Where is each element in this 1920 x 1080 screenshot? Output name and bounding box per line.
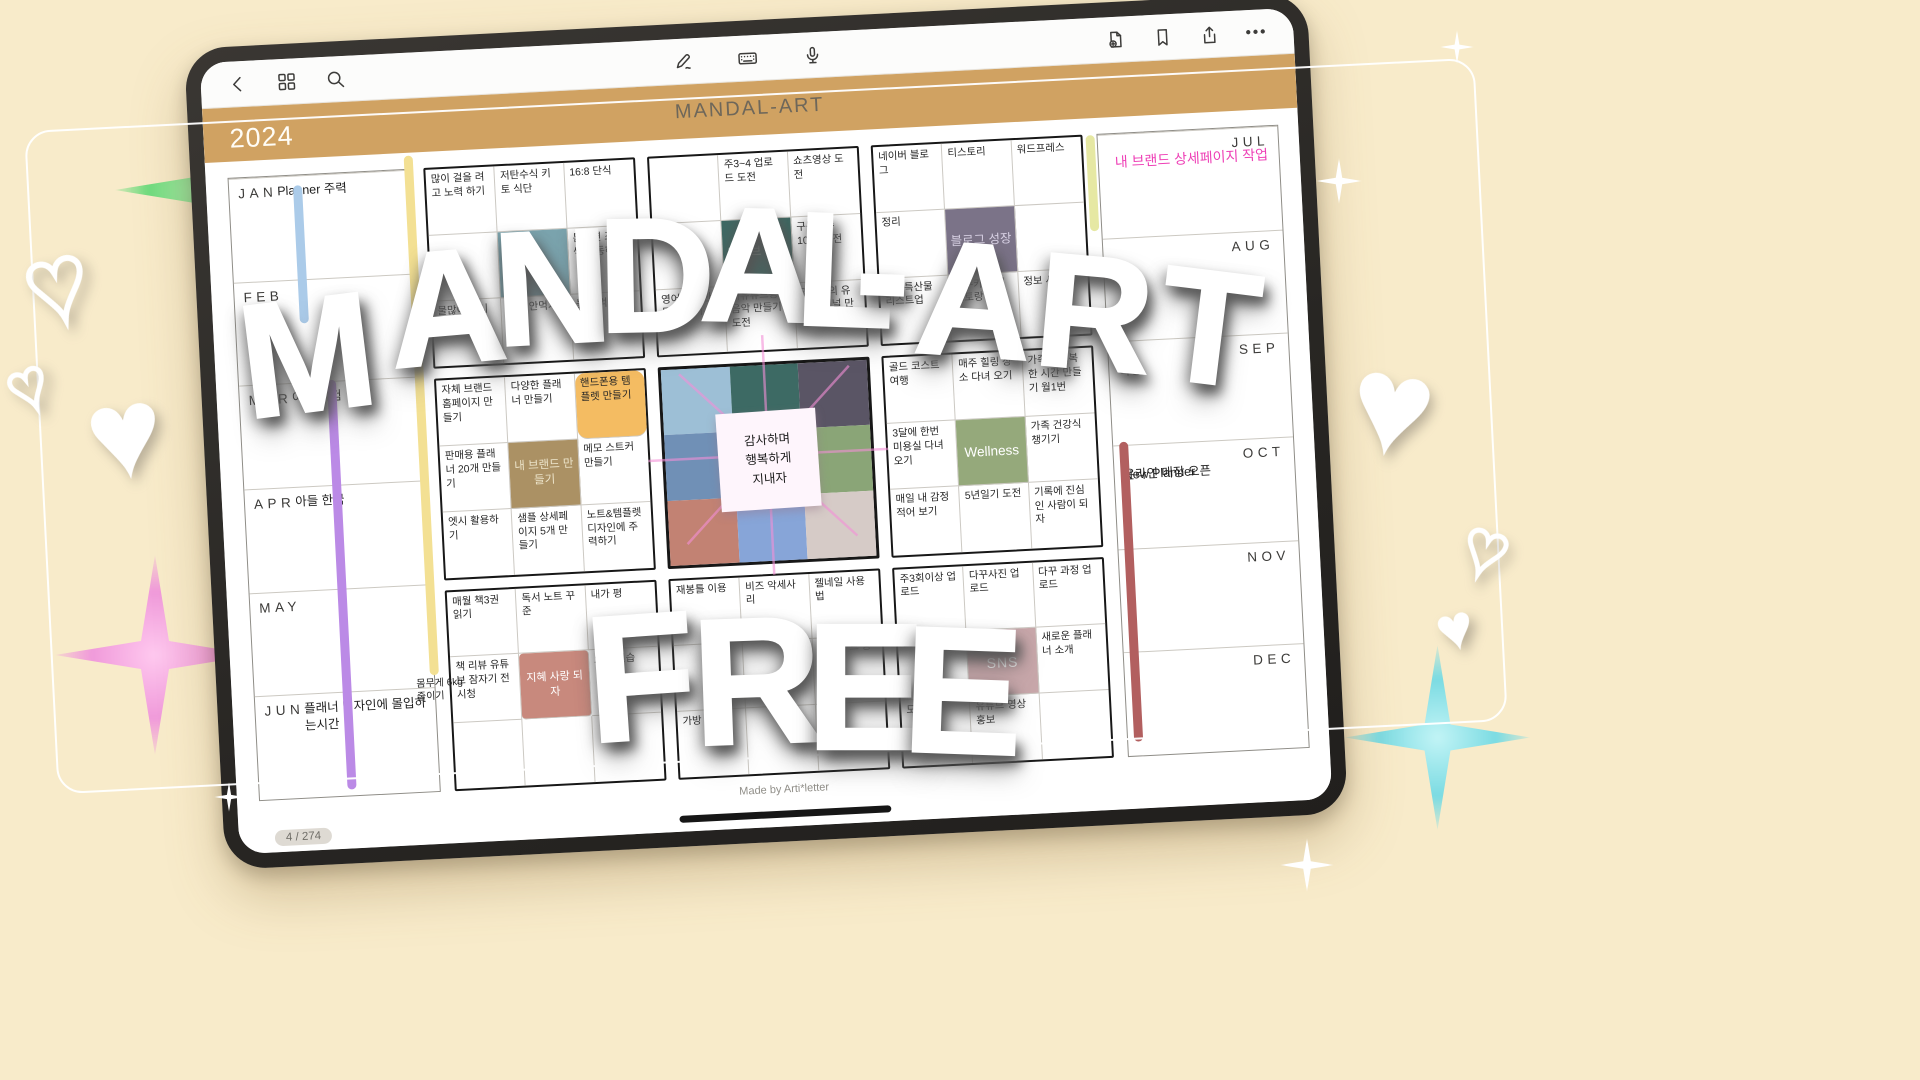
pen-icon[interactable] [671, 50, 693, 72]
page-thumbnails-icon[interactable] [275, 70, 297, 92]
keyboard-icon[interactable] [736, 47, 758, 69]
toolbar-left-group [226, 68, 346, 95]
share-icon[interactable] [1198, 24, 1220, 46]
decor-frame [24, 58, 1508, 795]
back-icon[interactable] [226, 73, 248, 95]
promo-scene: ••• MANDAL-ART 2024 몸무게 6kg 줄이기 [0, 0, 1920, 1080]
more-menu-icon[interactable]: ••• [1245, 23, 1268, 41]
page-indicator[interactable]: 4 / 274 [275, 827, 333, 846]
toolbar-center-group [671, 44, 823, 73]
search-icon[interactable] [324, 68, 346, 90]
credit-text: Made by Arti*letter [739, 781, 829, 798]
toolbar-right-group: ••• [1104, 21, 1268, 50]
white-sparkle-icon [1280, 838, 1334, 892]
bookmark-icon[interactable] [1151, 26, 1173, 48]
add-page-icon[interactable] [1104, 28, 1126, 50]
microphone-icon[interactable] [801, 44, 823, 66]
